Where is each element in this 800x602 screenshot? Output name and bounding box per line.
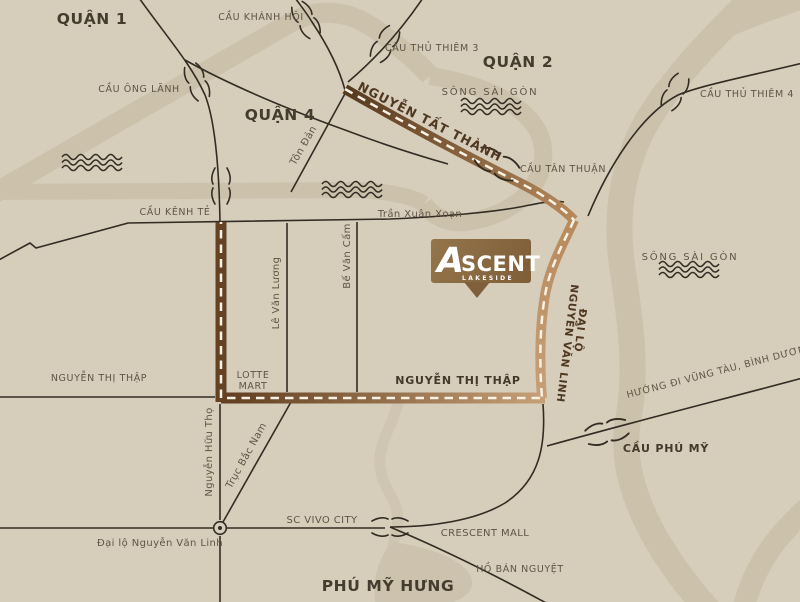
label-ho-ban-nguyet: HỒ BÁN NGUYỆT: [476, 562, 564, 575]
label-dai-lo-nguyen-van-linh: Đại lộ Nguyễn Văn Linh: [97, 536, 223, 549]
location-map: QUẬN 1 QUẬN 2 QUẬN 4 PHÚ MỸ HƯNG CẦU KHÁ…: [0, 0, 800, 602]
label-crescent-mall: CRESCENT MALL: [441, 528, 530, 539]
roundabout-junction: [214, 522, 227, 535]
district-quan-4: QUẬN 4: [245, 104, 316, 124]
label-cau-tan-thuan: CẦU TÂN THUẬN: [520, 162, 606, 175]
label-be-van-cam: Bế Văn Cấm: [341, 223, 353, 289]
label-le-van-luong: Lê Văn Lương: [270, 257, 282, 330]
label-cau-khanh-hoi: CẦU KHÁNH HỘI: [218, 10, 303, 23]
map-canvas: QUẬN 1 QUẬN 2 QUẬN 4 PHÚ MỸ HƯNG CẦU KHÁ…: [0, 0, 800, 602]
label-cau-ong-lanh: CẦU ÔNG LÃNH: [98, 82, 180, 95]
logo-subtitle: LAKESIDE: [462, 275, 514, 282]
label-lotte: LOTTE: [237, 370, 270, 381]
district-quan-1: QUẬN 1: [57, 8, 128, 28]
label-cau-kenh-te: CẦU KÊNH TẺ: [139, 205, 210, 218]
label-cau-thu-thiem-4: CẦU THỦ THIÊM 4: [700, 87, 794, 100]
label-cau-thu-thiem-3: CẦU THỦ THIÊM 3: [385, 41, 479, 54]
logo-name: SCENT: [461, 252, 540, 276]
label-song-sai-gon: SÔNG SÀI GÒN: [442, 85, 539, 98]
district-phu-my-hung: PHÚ MỸ HƯNG: [322, 576, 455, 595]
label-nguyen-thi-thap-west: NGUYỄN THỊ THẬP: [51, 371, 147, 384]
label-song-sai-gon-2: SÔNG SÀI GÒN: [642, 250, 739, 263]
label-nguyen-thi-thap: NGUYỄN THỊ THẬP: [395, 372, 521, 387]
label-tran-xuan-xoan: Trần Xuân Xoạn: [377, 208, 462, 220]
label-nguyen-huu-tho: Nguyễn Hữu Thọ: [202, 407, 215, 496]
label-mart: MART: [239, 381, 268, 392]
logo-initial: A: [434, 241, 464, 281]
label-cau-phu-my: CẦU PHÚ MỸ: [623, 441, 710, 455]
label-sc-vivo-city: SC VIVO CITY: [287, 515, 358, 526]
district-quan-2: QUẬN 2: [483, 51, 554, 71]
